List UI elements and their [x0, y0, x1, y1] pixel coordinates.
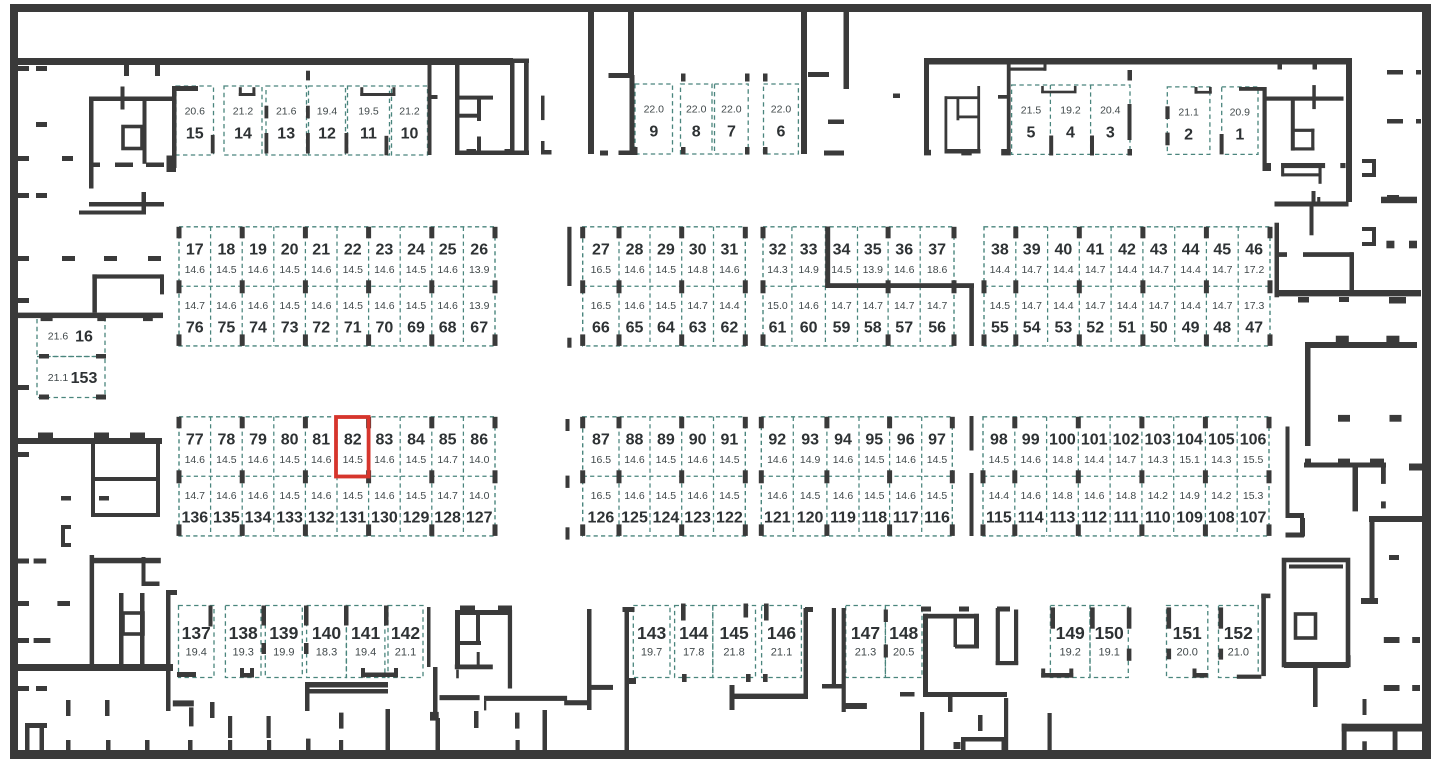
svg-text:8: 8 — [692, 124, 701, 141]
svg-text:14.7: 14.7 — [1212, 300, 1233, 312]
svg-text:14.4: 14.4 — [1117, 264, 1138, 276]
svg-text:149: 149 — [1056, 623, 1085, 643]
svg-text:14.5: 14.5 — [656, 454, 677, 466]
svg-text:61: 61 — [769, 320, 787, 337]
svg-text:14.6: 14.6 — [248, 490, 269, 502]
svg-text:14.5: 14.5 — [343, 490, 364, 502]
svg-text:14.6: 14.6 — [767, 454, 788, 466]
svg-text:116: 116 — [924, 510, 950, 527]
svg-text:14.5: 14.5 — [343, 454, 364, 466]
svg-text:14.9: 14.9 — [800, 454, 821, 466]
svg-text:14.3: 14.3 — [1148, 454, 1169, 466]
svg-text:96: 96 — [897, 432, 915, 449]
svg-text:119: 119 — [830, 510, 856, 527]
svg-text:95: 95 — [865, 432, 883, 449]
svg-text:15.3: 15.3 — [1243, 490, 1264, 502]
svg-text:21.1: 21.1 — [48, 372, 69, 384]
svg-text:25: 25 — [439, 242, 457, 259]
svg-text:14.6: 14.6 — [833, 490, 854, 502]
svg-text:14.4: 14.4 — [1180, 264, 1201, 276]
svg-text:62: 62 — [721, 320, 739, 337]
svg-text:153: 153 — [71, 370, 98, 387]
svg-text:14.6: 14.6 — [1020, 490, 1041, 502]
svg-text:22.0: 22.0 — [644, 103, 665, 115]
svg-text:47: 47 — [1245, 320, 1263, 337]
svg-text:86: 86 — [470, 432, 488, 449]
svg-text:14.6: 14.6 — [311, 300, 332, 312]
svg-text:150: 150 — [1095, 623, 1124, 643]
svg-text:81: 81 — [312, 432, 330, 449]
svg-text:10: 10 — [401, 126, 419, 143]
svg-text:118: 118 — [861, 510, 887, 527]
svg-text:89: 89 — [657, 432, 675, 449]
svg-text:88: 88 — [626, 432, 644, 449]
svg-text:143: 143 — [637, 623, 666, 643]
svg-text:14.7: 14.7 — [437, 454, 458, 466]
svg-text:14.8: 14.8 — [1116, 490, 1137, 502]
svg-text:16: 16 — [75, 329, 93, 346]
svg-text:9: 9 — [649, 124, 658, 141]
svg-text:84: 84 — [407, 432, 425, 449]
svg-text:3: 3 — [1106, 125, 1115, 142]
svg-text:18.3: 18.3 — [316, 647, 337, 659]
svg-text:145: 145 — [719, 623, 748, 643]
svg-text:22.0: 22.0 — [686, 103, 707, 115]
svg-text:83: 83 — [376, 432, 394, 449]
svg-text:134: 134 — [245, 510, 272, 527]
svg-text:66: 66 — [592, 320, 610, 337]
svg-text:63: 63 — [689, 320, 707, 337]
svg-text:75: 75 — [218, 320, 236, 337]
svg-text:14.5: 14.5 — [990, 300, 1011, 312]
svg-text:110: 110 — [1145, 510, 1171, 527]
svg-text:94: 94 — [834, 432, 852, 449]
svg-text:46: 46 — [1245, 242, 1263, 259]
svg-text:14.9: 14.9 — [798, 264, 819, 276]
svg-text:14.5: 14.5 — [927, 490, 948, 502]
svg-text:15: 15 — [186, 126, 204, 143]
svg-text:79: 79 — [249, 432, 267, 449]
svg-text:14.6: 14.6 — [687, 490, 708, 502]
svg-text:14.6: 14.6 — [311, 490, 332, 502]
svg-text:12: 12 — [318, 126, 336, 143]
svg-text:59: 59 — [833, 320, 851, 337]
svg-text:23: 23 — [376, 242, 394, 259]
svg-text:54: 54 — [1023, 320, 1041, 337]
svg-text:93: 93 — [801, 432, 819, 449]
svg-text:38: 38 — [991, 242, 1009, 259]
svg-text:36: 36 — [895, 242, 913, 259]
svg-text:137: 137 — [182, 623, 211, 643]
svg-text:72: 72 — [312, 320, 330, 337]
svg-text:14.6: 14.6 — [798, 300, 819, 312]
svg-text:112: 112 — [1081, 510, 1107, 527]
svg-text:97: 97 — [928, 432, 946, 449]
svg-text:64: 64 — [657, 320, 675, 337]
svg-text:53: 53 — [1055, 320, 1073, 337]
svg-text:1: 1 — [1235, 127, 1244, 144]
svg-text:14.7: 14.7 — [687, 300, 708, 312]
svg-text:19: 19 — [249, 242, 267, 259]
svg-text:109: 109 — [1176, 510, 1203, 527]
svg-text:14.5: 14.5 — [279, 454, 300, 466]
svg-text:113: 113 — [1049, 510, 1075, 527]
svg-text:60: 60 — [800, 320, 818, 337]
svg-text:14.2: 14.2 — [1211, 490, 1232, 502]
svg-text:14.6: 14.6 — [248, 454, 269, 466]
svg-text:22.0: 22.0 — [771, 103, 792, 115]
svg-text:14.6: 14.6 — [833, 454, 854, 466]
svg-text:142: 142 — [391, 623, 420, 643]
svg-text:120: 120 — [797, 510, 824, 527]
svg-text:17.2: 17.2 — [1244, 264, 1265, 276]
svg-text:14: 14 — [234, 126, 252, 143]
svg-text:14.6: 14.6 — [248, 300, 269, 312]
svg-text:19.7: 19.7 — [641, 647, 662, 659]
svg-text:14.7: 14.7 — [894, 300, 915, 312]
svg-text:21.2: 21.2 — [399, 105, 420, 117]
svg-text:147: 147 — [851, 623, 880, 643]
svg-text:21.5: 21.5 — [1021, 104, 1042, 116]
svg-text:14.6: 14.6 — [1084, 490, 1105, 502]
svg-text:14.6: 14.6 — [374, 264, 395, 276]
svg-text:14.8: 14.8 — [687, 264, 708, 276]
svg-text:14.5: 14.5 — [719, 490, 740, 502]
svg-text:14.4: 14.4 — [719, 300, 740, 312]
svg-text:14.6: 14.6 — [311, 264, 332, 276]
svg-text:14.5: 14.5 — [279, 264, 300, 276]
svg-text:19.4: 19.4 — [355, 647, 376, 659]
svg-text:14.6: 14.6 — [216, 300, 237, 312]
svg-text:139: 139 — [269, 623, 298, 643]
svg-text:152: 152 — [1224, 623, 1253, 643]
svg-text:74: 74 — [249, 320, 267, 337]
svg-text:14.5: 14.5 — [656, 490, 677, 502]
svg-text:14.5: 14.5 — [216, 454, 237, 466]
svg-text:20.4: 20.4 — [1100, 104, 1121, 116]
svg-text:77: 77 — [186, 432, 204, 449]
svg-text:76: 76 — [186, 320, 204, 337]
svg-text:125: 125 — [621, 510, 648, 527]
svg-text:124: 124 — [653, 510, 680, 527]
svg-text:16.5: 16.5 — [591, 454, 612, 466]
svg-text:22.0: 22.0 — [721, 103, 742, 115]
svg-text:14.6: 14.6 — [624, 300, 645, 312]
svg-text:21.3: 21.3 — [855, 647, 876, 659]
svg-text:136: 136 — [181, 510, 208, 527]
svg-text:41: 41 — [1086, 242, 1104, 259]
svg-text:32: 32 — [769, 242, 787, 259]
svg-text:14.8: 14.8 — [1052, 490, 1073, 502]
svg-text:121: 121 — [764, 510, 791, 527]
svg-text:14.6: 14.6 — [437, 264, 458, 276]
svg-text:107: 107 — [1240, 510, 1267, 527]
svg-text:80: 80 — [281, 432, 299, 449]
svg-text:13.9: 13.9 — [469, 300, 490, 312]
svg-text:50: 50 — [1150, 320, 1168, 337]
svg-text:69: 69 — [407, 320, 425, 337]
svg-text:132: 132 — [308, 510, 335, 527]
svg-text:13: 13 — [277, 126, 295, 143]
svg-text:20.6: 20.6 — [185, 105, 206, 117]
svg-text:14.6: 14.6 — [374, 300, 395, 312]
svg-text:20: 20 — [281, 242, 299, 259]
svg-text:49: 49 — [1182, 320, 1200, 337]
svg-text:21.8: 21.8 — [723, 647, 744, 659]
svg-text:21.6: 21.6 — [48, 331, 69, 343]
svg-text:73: 73 — [281, 320, 299, 337]
svg-text:14.6: 14.6 — [216, 490, 237, 502]
svg-text:14.3: 14.3 — [1211, 454, 1232, 466]
svg-text:15.0: 15.0 — [767, 300, 788, 312]
svg-text:126: 126 — [588, 510, 615, 527]
svg-text:19.9: 19.9 — [273, 647, 294, 659]
svg-text:14.5: 14.5 — [831, 264, 852, 276]
svg-text:14.5: 14.5 — [406, 454, 427, 466]
svg-text:14.2: 14.2 — [1148, 490, 1169, 502]
svg-text:82: 82 — [344, 432, 362, 449]
svg-text:30: 30 — [689, 242, 707, 259]
svg-text:127: 127 — [466, 510, 493, 527]
svg-text:19.4: 19.4 — [185, 647, 206, 659]
svg-text:14.7: 14.7 — [1149, 264, 1170, 276]
svg-text:21.1: 21.1 — [1178, 106, 1199, 118]
svg-text:14.5: 14.5 — [719, 454, 740, 466]
svg-text:14.6: 14.6 — [374, 490, 395, 502]
svg-text:14.3: 14.3 — [767, 264, 788, 276]
svg-text:15.1: 15.1 — [1179, 454, 1200, 466]
svg-text:48: 48 — [1213, 320, 1231, 337]
svg-text:13.9: 13.9 — [469, 264, 490, 276]
svg-text:14.6: 14.6 — [624, 264, 645, 276]
svg-text:14.7: 14.7 — [1085, 264, 1106, 276]
svg-text:39: 39 — [1023, 242, 1041, 259]
svg-text:14.5: 14.5 — [656, 264, 677, 276]
svg-text:34: 34 — [833, 242, 851, 259]
svg-text:14.7: 14.7 — [1212, 264, 1233, 276]
svg-text:16.5: 16.5 — [591, 300, 612, 312]
svg-text:17: 17 — [186, 242, 204, 259]
svg-text:87: 87 — [592, 432, 610, 449]
svg-text:14.5: 14.5 — [279, 490, 300, 502]
svg-text:7: 7 — [727, 124, 736, 141]
svg-text:138: 138 — [229, 623, 258, 643]
svg-text:14.7: 14.7 — [1149, 300, 1170, 312]
svg-text:45: 45 — [1213, 242, 1231, 259]
svg-text:14.4: 14.4 — [1084, 454, 1105, 466]
svg-text:21.0: 21.0 — [1228, 647, 1249, 659]
svg-text:14.7: 14.7 — [1021, 300, 1042, 312]
svg-text:108: 108 — [1208, 510, 1235, 527]
svg-text:14.5: 14.5 — [216, 264, 237, 276]
svg-text:37: 37 — [928, 242, 946, 259]
svg-text:14.5: 14.5 — [343, 300, 364, 312]
svg-text:14.6: 14.6 — [1020, 454, 1041, 466]
svg-text:11: 11 — [360, 126, 377, 143]
svg-text:104: 104 — [1176, 432, 1203, 449]
svg-text:14.4: 14.4 — [1053, 264, 1074, 276]
svg-text:14.0: 14.0 — [469, 454, 490, 466]
svg-text:122: 122 — [716, 510, 743, 527]
svg-text:140: 140 — [312, 623, 341, 643]
svg-text:29: 29 — [657, 242, 675, 259]
svg-text:92: 92 — [768, 432, 786, 449]
svg-text:131: 131 — [339, 510, 366, 527]
svg-text:128: 128 — [434, 510, 461, 527]
svg-text:102: 102 — [1113, 432, 1140, 449]
svg-text:22: 22 — [344, 242, 362, 259]
svg-text:19.1: 19.1 — [1098, 647, 1119, 659]
svg-text:21.2: 21.2 — [233, 105, 254, 117]
svg-text:44: 44 — [1182, 242, 1200, 259]
svg-text:14.5: 14.5 — [343, 264, 364, 276]
svg-text:14.8: 14.8 — [1052, 454, 1073, 466]
svg-text:16.5: 16.5 — [591, 264, 612, 276]
svg-text:65: 65 — [626, 320, 644, 337]
svg-text:14.6: 14.6 — [895, 454, 916, 466]
svg-text:24: 24 — [407, 242, 425, 259]
svg-text:18.6: 18.6 — [927, 264, 948, 276]
svg-text:14.6: 14.6 — [624, 454, 645, 466]
svg-text:114: 114 — [1018, 510, 1044, 527]
svg-text:141: 141 — [351, 623, 380, 643]
svg-text:148: 148 — [889, 623, 918, 643]
svg-text:14.6: 14.6 — [248, 264, 269, 276]
svg-text:14.7: 14.7 — [1116, 454, 1137, 466]
svg-text:4: 4 — [1066, 125, 1075, 142]
svg-text:14.7: 14.7 — [927, 300, 948, 312]
svg-text:15.5: 15.5 — [1243, 454, 1264, 466]
svg-text:14.5: 14.5 — [406, 264, 427, 276]
svg-text:115: 115 — [986, 510, 1012, 527]
svg-text:14.6: 14.6 — [185, 454, 206, 466]
svg-text:98: 98 — [990, 432, 1008, 449]
svg-text:14.7: 14.7 — [185, 490, 206, 502]
svg-text:14.7: 14.7 — [437, 490, 458, 502]
svg-text:33: 33 — [800, 242, 818, 259]
svg-text:14.6: 14.6 — [767, 490, 788, 502]
svg-text:19.4: 19.4 — [317, 105, 338, 117]
svg-text:129: 129 — [403, 510, 430, 527]
svg-text:26: 26 — [470, 242, 488, 259]
svg-text:5: 5 — [1027, 125, 1036, 142]
svg-text:101: 101 — [1081, 432, 1108, 449]
svg-text:35: 35 — [864, 242, 882, 259]
svg-text:14.6: 14.6 — [624, 490, 645, 502]
svg-text:14.9: 14.9 — [1179, 490, 1200, 502]
svg-text:21.1: 21.1 — [395, 647, 416, 659]
svg-text:14.7: 14.7 — [831, 300, 852, 312]
svg-text:151: 151 — [1173, 623, 1202, 643]
svg-text:14.5: 14.5 — [864, 454, 885, 466]
svg-text:21: 21 — [312, 242, 330, 259]
svg-text:85: 85 — [439, 432, 457, 449]
svg-text:14.7: 14.7 — [185, 300, 206, 312]
svg-text:20.0: 20.0 — [1176, 647, 1197, 659]
svg-text:14.6: 14.6 — [687, 454, 708, 466]
svg-text:51: 51 — [1118, 320, 1136, 337]
svg-text:13.9: 13.9 — [863, 264, 884, 276]
svg-text:52: 52 — [1086, 320, 1104, 337]
svg-text:55: 55 — [991, 320, 1009, 337]
svg-text:6: 6 — [777, 124, 786, 141]
svg-text:14.0: 14.0 — [469, 490, 490, 502]
svg-text:14.6: 14.6 — [719, 264, 740, 276]
svg-text:21.1: 21.1 — [771, 647, 792, 659]
svg-text:18: 18 — [218, 242, 236, 259]
svg-text:130: 130 — [371, 510, 398, 527]
svg-text:111: 111 — [1114, 510, 1139, 527]
svg-text:14.6: 14.6 — [311, 454, 332, 466]
svg-text:14.4: 14.4 — [1117, 300, 1138, 312]
svg-text:17.3: 17.3 — [1244, 300, 1265, 312]
svg-text:14.6: 14.6 — [374, 454, 395, 466]
svg-text:43: 43 — [1150, 242, 1168, 259]
svg-text:14.4: 14.4 — [989, 490, 1010, 502]
svg-text:14.5: 14.5 — [864, 490, 885, 502]
svg-text:27: 27 — [592, 242, 610, 259]
svg-text:117: 117 — [893, 510, 919, 527]
svg-text:14.7: 14.7 — [863, 300, 884, 312]
svg-text:40: 40 — [1055, 242, 1073, 259]
svg-text:14.6: 14.6 — [185, 264, 206, 276]
svg-text:106: 106 — [1240, 432, 1267, 449]
svg-text:90: 90 — [689, 432, 707, 449]
svg-text:14.4: 14.4 — [1180, 300, 1201, 312]
svg-text:103: 103 — [1144, 432, 1171, 449]
svg-text:14.5: 14.5 — [989, 454, 1010, 466]
svg-text:14.5: 14.5 — [800, 490, 821, 502]
svg-text:19.2: 19.2 — [1059, 647, 1080, 659]
svg-text:31: 31 — [721, 242, 739, 259]
svg-text:123: 123 — [684, 510, 711, 527]
svg-text:21.6: 21.6 — [276, 105, 297, 117]
svg-text:14.6: 14.6 — [895, 490, 916, 502]
svg-text:2: 2 — [1184, 127, 1193, 144]
svg-text:20.9: 20.9 — [1230, 106, 1251, 118]
svg-text:14.5: 14.5 — [927, 454, 948, 466]
svg-text:57: 57 — [895, 320, 913, 337]
svg-text:78: 78 — [218, 432, 236, 449]
svg-text:14.7: 14.7 — [1085, 300, 1106, 312]
svg-text:14.7: 14.7 — [1021, 264, 1042, 276]
svg-text:70: 70 — [376, 320, 394, 337]
svg-text:42: 42 — [1118, 242, 1136, 259]
svg-text:14.5: 14.5 — [406, 300, 427, 312]
svg-text:14.5: 14.5 — [656, 300, 677, 312]
svg-text:14.6: 14.6 — [894, 264, 915, 276]
svg-text:14.5: 14.5 — [406, 490, 427, 502]
svg-text:67: 67 — [470, 320, 488, 337]
svg-text:19.5: 19.5 — [358, 105, 379, 117]
svg-text:71: 71 — [344, 320, 362, 337]
svg-text:19.2: 19.2 — [1060, 104, 1081, 116]
svg-text:133: 133 — [276, 510, 303, 527]
svg-text:100: 100 — [1049, 432, 1076, 449]
svg-text:17.8: 17.8 — [683, 647, 704, 659]
svg-text:14.4: 14.4 — [1053, 300, 1074, 312]
svg-text:68: 68 — [439, 320, 457, 337]
svg-text:56: 56 — [928, 320, 946, 337]
svg-text:14.4: 14.4 — [990, 264, 1011, 276]
svg-text:135: 135 — [213, 510, 240, 527]
svg-text:20.5: 20.5 — [893, 647, 914, 659]
svg-text:28: 28 — [626, 242, 644, 259]
svg-text:19.3: 19.3 — [232, 647, 253, 659]
svg-text:16.5: 16.5 — [591, 490, 612, 502]
svg-text:105: 105 — [1208, 432, 1235, 449]
svg-text:144: 144 — [679, 623, 708, 643]
